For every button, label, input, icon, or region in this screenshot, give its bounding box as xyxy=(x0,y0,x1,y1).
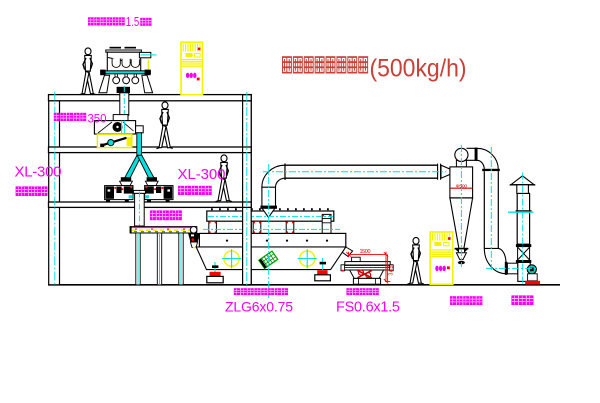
svg-text:XL-300: XL-300 xyxy=(178,166,226,183)
svg-text:FS0.6x1.5: FS0.6x1.5 xyxy=(336,300,400,316)
svg-text:(500kg/h): (500kg/h) xyxy=(370,55,467,83)
svg-text:XL-300: XL-300 xyxy=(15,164,62,181)
svg-text:ZLG6x0.75: ZLG6x0.75 xyxy=(225,299,293,315)
svg-text:Φ500: Φ500 xyxy=(456,183,468,189)
svg-text:350: 350 xyxy=(88,114,107,126)
svg-text:1.5: 1.5 xyxy=(126,15,140,29)
svg-text:1500: 1500 xyxy=(360,249,371,255)
svg-text:345: 345 xyxy=(389,266,395,276)
